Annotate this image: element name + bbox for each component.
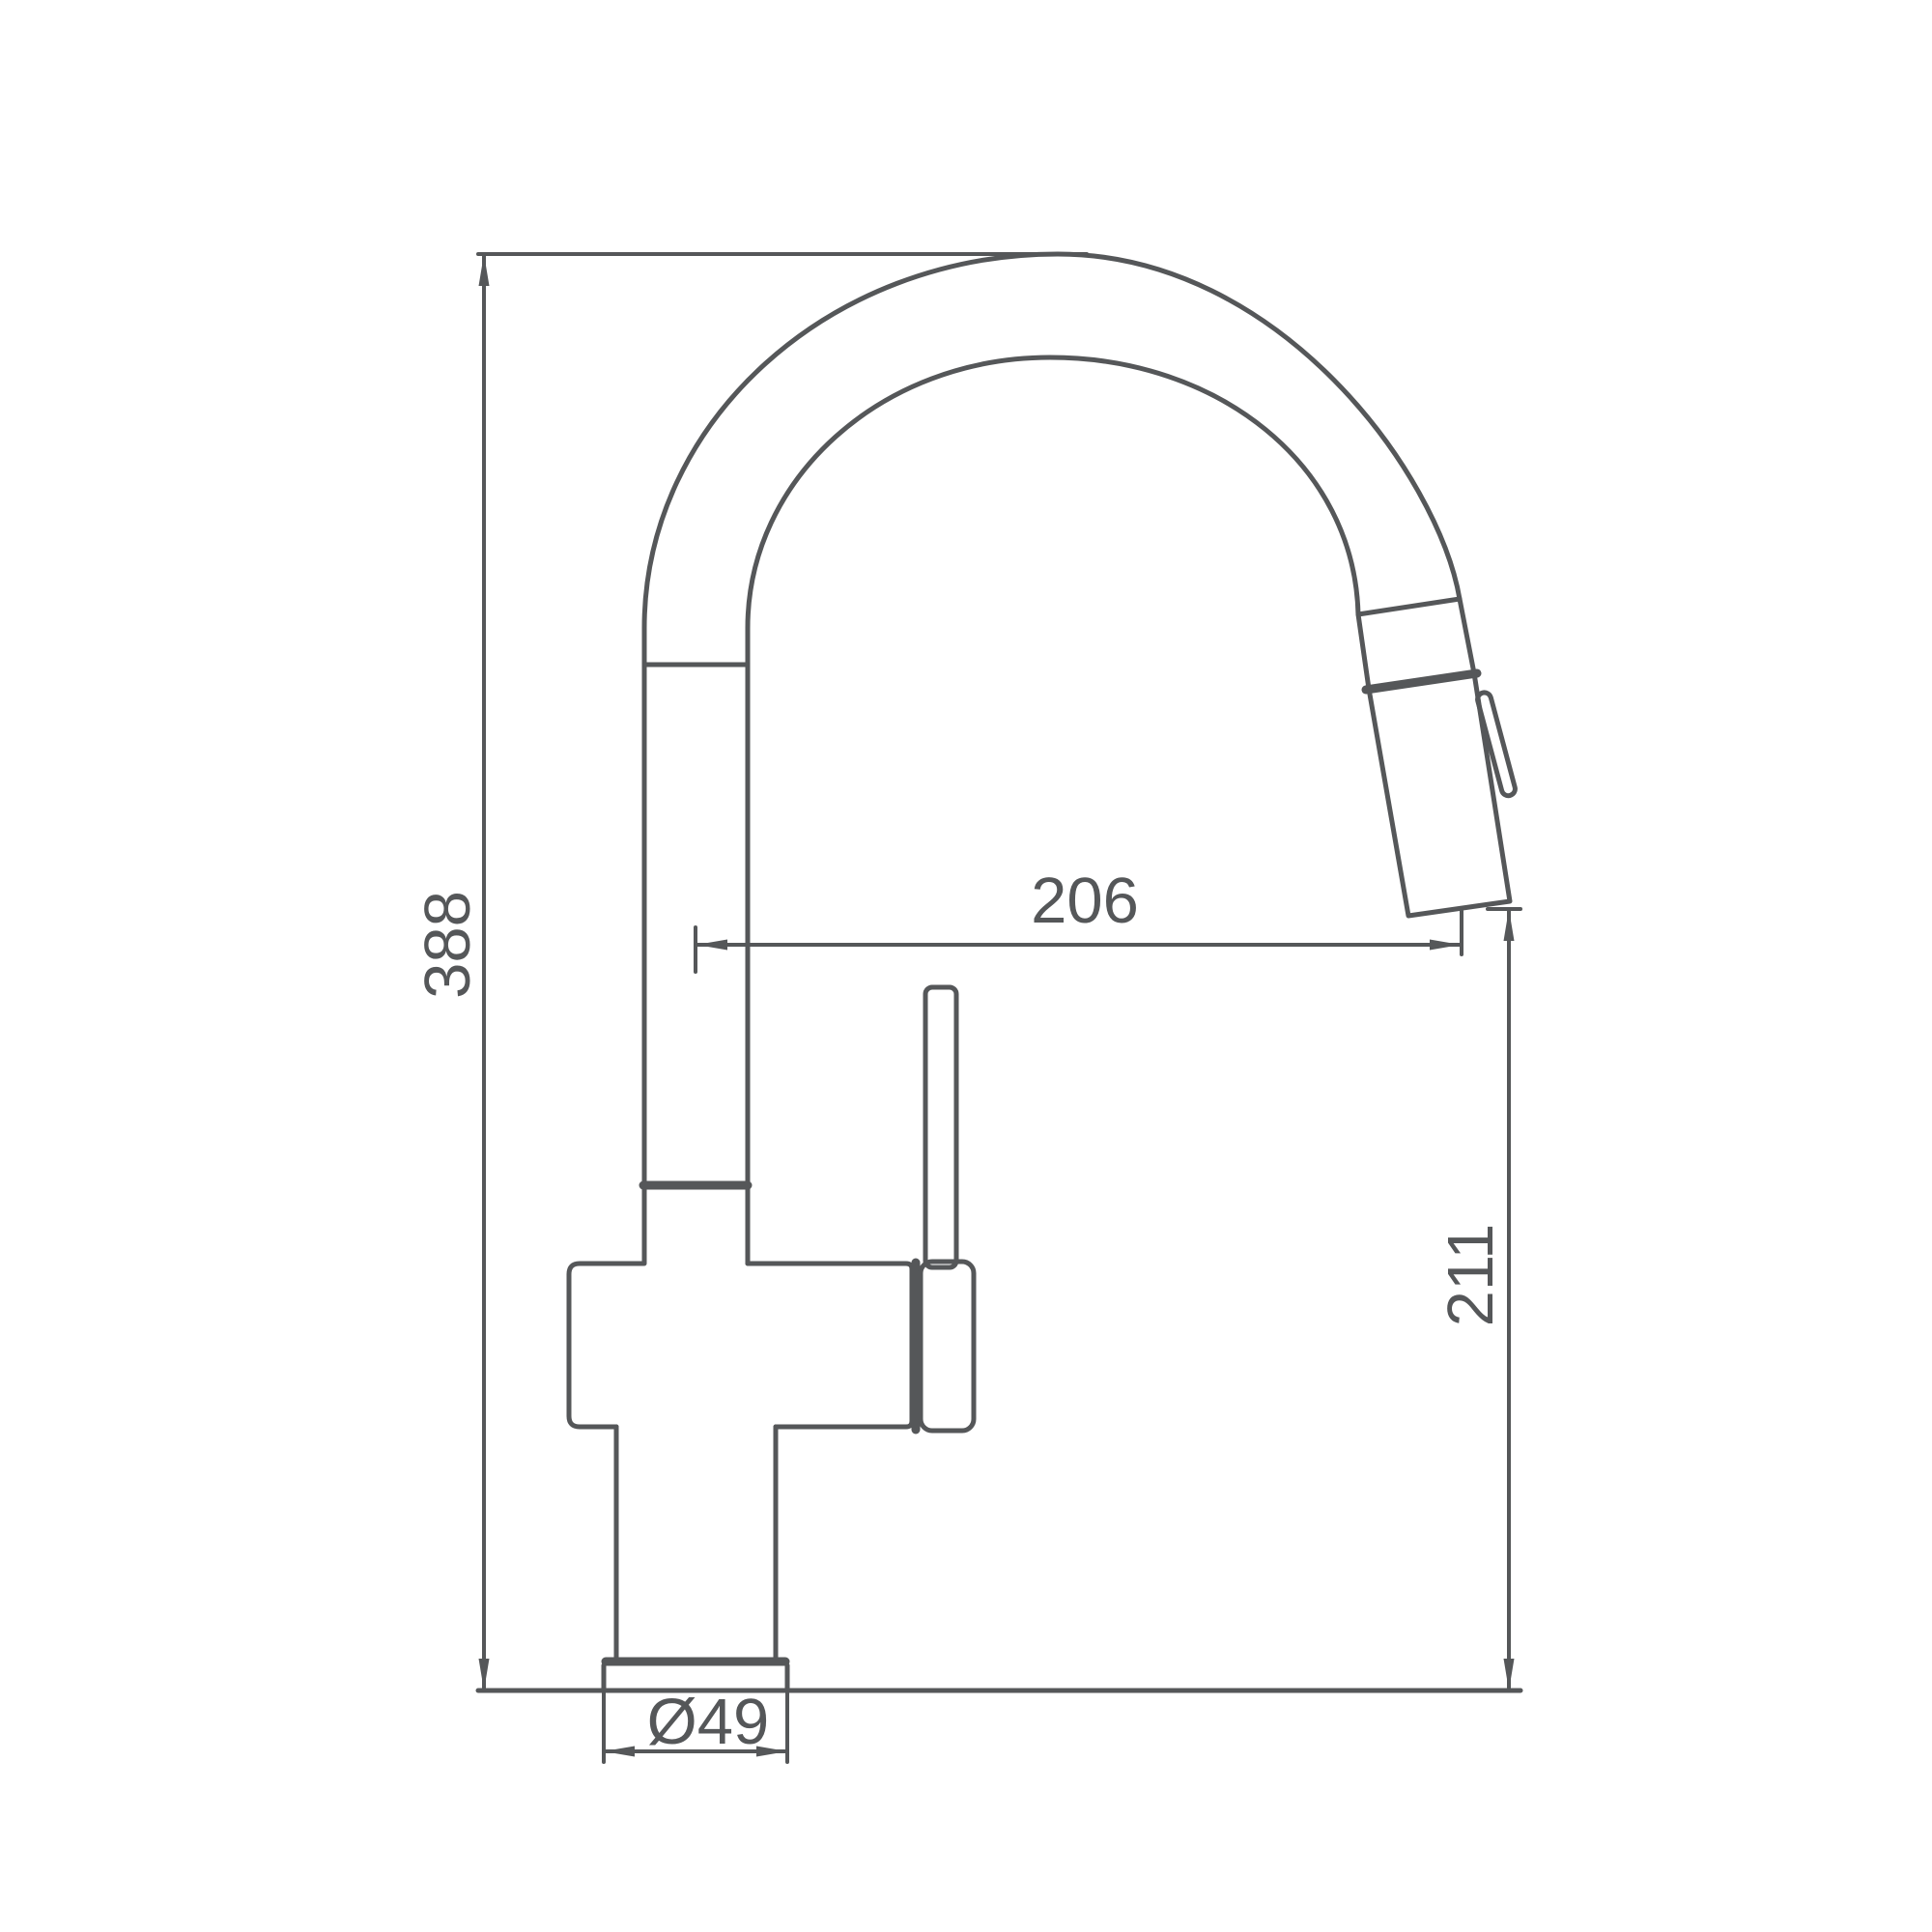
mixer-body-right-outline [748, 1264, 912, 1427]
spray-head-trigger [1476, 691, 1517, 797]
gooseneck-outer-curve [644, 254, 1460, 1264]
faucet-technical-drawing: 388 206 211 Ø49 [0, 0, 1932, 1932]
handle-lever [925, 987, 956, 1267]
spray-neck-left-edge [1358, 614, 1369, 689]
mixer-body-left-outline [569, 1264, 643, 1427]
spray-head-body [1369, 673, 1510, 916]
arrowhead-206-right [1430, 940, 1461, 951]
spout-end-seam-line [1358, 599, 1460, 614]
arrowhead-211-up [1504, 909, 1515, 941]
arrowhead-49-left [604, 1747, 635, 1757]
arrowhead-388-down [479, 1659, 490, 1690]
dim-label-overall-height: 388 [412, 891, 484, 999]
spray-head-collar-band [1366, 673, 1477, 690]
spray-neck-right-edge [1460, 599, 1474, 673]
dim-label-outlet-height: 211 [1435, 1224, 1507, 1327]
handle-housing [921, 1262, 974, 1431]
dim-label-spout-reach: 206 [1031, 865, 1139, 937]
arrowhead-388-up [479, 254, 490, 286]
dim-label-base-diameter: Ø49 [647, 1686, 770, 1758]
gooseneck-inner-curve [748, 357, 1358, 1264]
arrowhead-211-down [1504, 1659, 1515, 1690]
arrowhead-206-left [696, 940, 727, 951]
